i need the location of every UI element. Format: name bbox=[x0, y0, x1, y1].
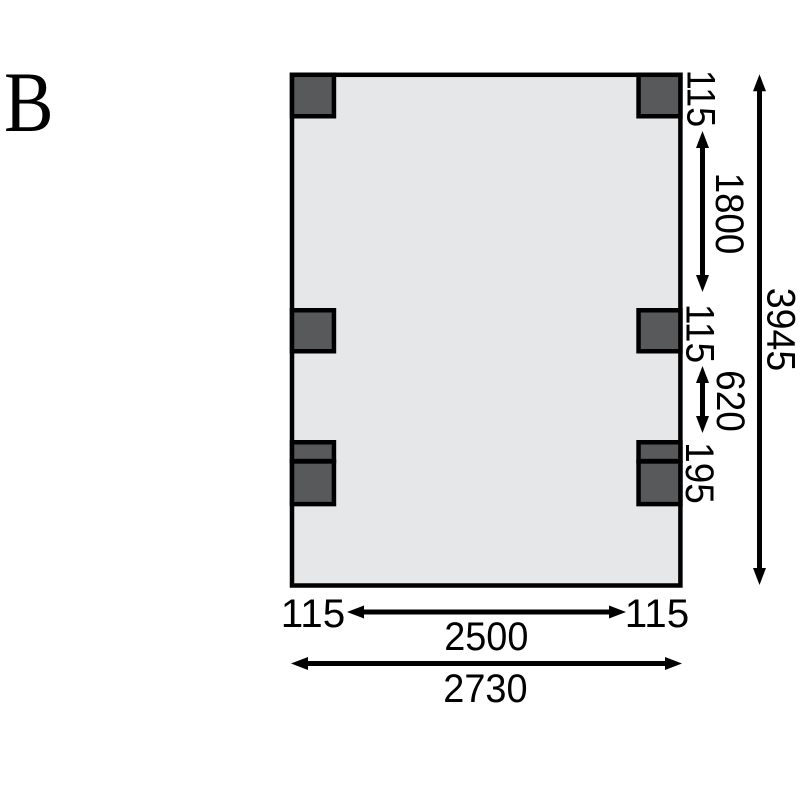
svg-text:3945: 3945 bbox=[759, 288, 800, 372]
svg-text:115: 115 bbox=[679, 70, 723, 128]
svg-text:B: B bbox=[4, 54, 54, 150]
svg-text:1800: 1800 bbox=[707, 173, 751, 255]
svg-text:115: 115 bbox=[678, 304, 722, 363]
svg-text:2500: 2500 bbox=[444, 615, 528, 659]
svg-text:2730: 2730 bbox=[443, 667, 527, 711]
svg-text:620: 620 bbox=[708, 370, 752, 432]
svg-text:115: 115 bbox=[281, 592, 345, 636]
svg-text:115: 115 bbox=[625, 592, 689, 636]
svg-text:195: 195 bbox=[677, 442, 721, 504]
